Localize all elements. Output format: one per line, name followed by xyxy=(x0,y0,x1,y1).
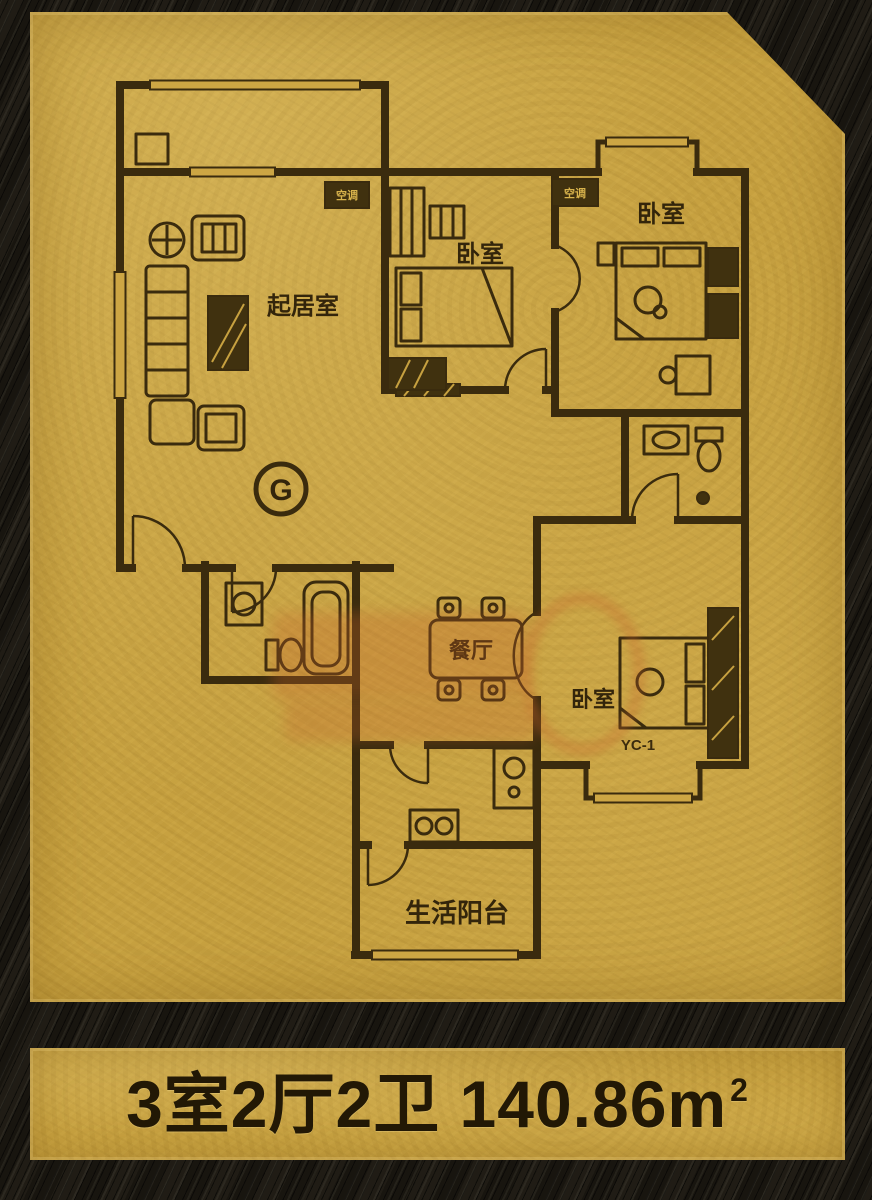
window-balcony-bottom xyxy=(372,951,518,960)
entry-door-arc xyxy=(133,516,185,568)
window-balcony-top xyxy=(150,81,360,90)
footer-bar: 3室2厅2卫 140.86m2 xyxy=(30,1048,845,1160)
label-unit-letter: G xyxy=(269,474,292,507)
label-ac-1: 空调 xyxy=(336,188,358,202)
kitchen-door-arc xyxy=(390,745,428,783)
balcony-door-arc xyxy=(368,845,408,885)
room-labels: 起居室 卧室 卧室 卧室 餐厅 生活阳台 空调 空调 YC-1 G xyxy=(266,186,685,928)
label-ac-2: 空调 xyxy=(564,186,586,200)
bathroom1-fixtures xyxy=(226,582,348,674)
bedroom-top-door-arc xyxy=(505,349,546,390)
bay-window-bottom-right xyxy=(594,794,692,803)
bathroom2-fixtures xyxy=(644,426,722,504)
bedroom-right-furniture xyxy=(598,243,738,394)
bay-window-top-right xyxy=(606,138,688,147)
living-room-furniture xyxy=(146,216,248,450)
bedroom-bottom-furniture xyxy=(620,608,738,758)
wardrobe-bottom-right xyxy=(708,608,738,758)
label-dining: 餐厅 xyxy=(449,638,493,663)
label-window-code: YC-1 xyxy=(621,737,655,754)
label-living-room: 起居室 xyxy=(266,292,339,320)
bedroom-top-furniture xyxy=(388,188,512,390)
footer-area: 140.86m xyxy=(460,1067,728,1141)
footer-area-exponent: 2 xyxy=(730,1072,749,1108)
bathroom2-door-arc xyxy=(632,474,678,520)
label-bedroom-top: 卧室 xyxy=(456,240,504,268)
footer-layout: 3室2厅2卫 xyxy=(126,1067,440,1141)
floor-plan-canvas: 起居室 卧室 卧室 卧室 餐厅 生活阳台 空调 空调 YC-1 G xyxy=(0,0,872,1200)
flue-box xyxy=(136,134,168,164)
label-bedroom-right: 卧室 xyxy=(637,200,685,228)
bedroom-right-door-arc xyxy=(555,245,580,312)
window-living-divider xyxy=(190,168,275,177)
label-bedroom-bottom: 卧室 xyxy=(571,687,615,712)
bedroom-bottom-door-arc xyxy=(514,612,537,700)
furniture xyxy=(136,134,738,842)
page-background: 起居室 卧室 卧室 卧室 餐厅 生活阳台 空调 空调 YC-1 G 3室2厅2卫… xyxy=(0,0,872,1200)
tv-cabinet xyxy=(208,296,248,370)
label-balcony: 生活阳台 xyxy=(405,898,509,928)
window-living-left xyxy=(115,272,126,398)
wardrobe-hatched xyxy=(388,358,446,390)
footer-text: 3室2厅2卫 140.86m2 xyxy=(126,1071,749,1137)
